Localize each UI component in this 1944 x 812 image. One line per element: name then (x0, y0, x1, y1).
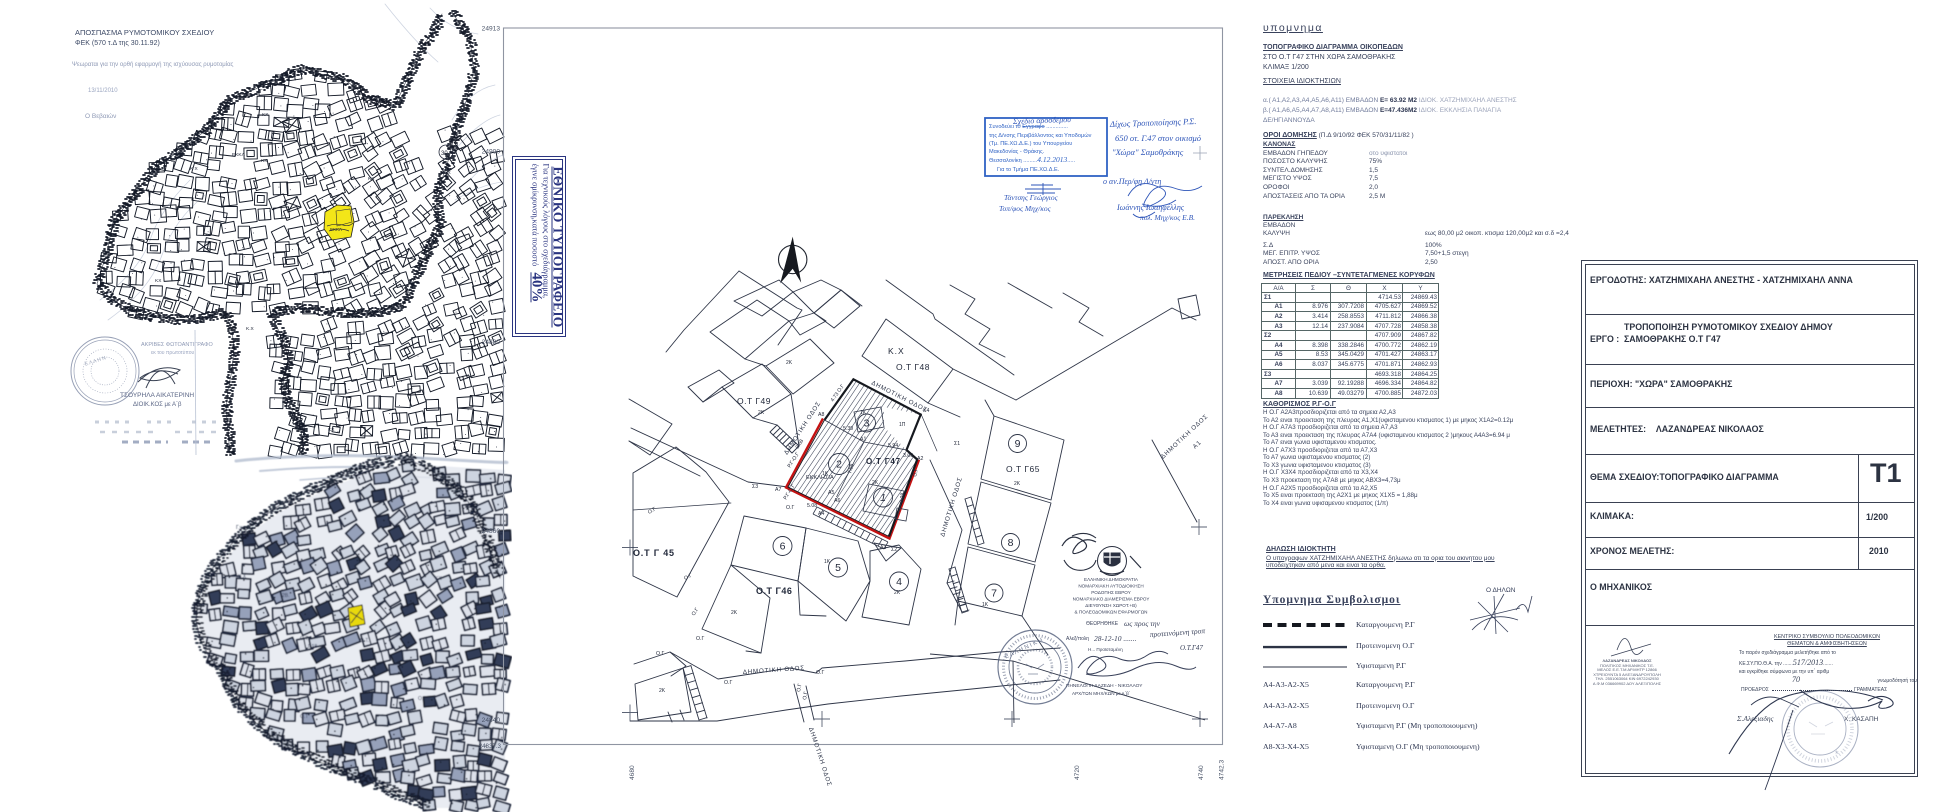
svg-text:8: 8 (1008, 537, 1014, 549)
svg-text:Α6: Α6 (834, 498, 840, 504)
svg-text:προτεινόμενη τροπ: προτεινόμενη τροπ (1150, 626, 1206, 639)
svg-text:1Κ: 1Κ (982, 602, 989, 608)
svg-text:ΕΚΚΛ: ΕΚΚΛ (232, 152, 246, 158)
svg-text:5.94: 5.94 (888, 443, 898, 449)
svg-text:6: 6 (780, 541, 786, 553)
svg-text:Ο.Γ: Ο.Γ (802, 691, 809, 700)
svg-text:Κ.Χ: Κ.Χ (238, 574, 247, 580)
svg-text:Ο.Γ: Ο.Γ (786, 505, 794, 511)
svg-text:Ο.Τ Γ 45: Ο.Τ Γ 45 (633, 548, 675, 558)
svg-text:24913: 24913 (482, 26, 501, 33)
svg-text:9: 9 (1015, 438, 1021, 450)
svg-text:Γ.18: Γ.18 (308, 644, 317, 650)
svg-text:ΚΧ: ΚΧ (261, 158, 268, 164)
svg-text:Α1: Α1 (1192, 439, 1203, 450)
svg-text:4720: 4720 (1074, 765, 1081, 780)
svg-text:ΔΗΜΟΤΙΚΗ ΟΔΟΣ: ΔΗΜΟΤΙΚΗ ΟΔΟΣ (743, 665, 805, 676)
svg-text:5.39: 5.39 (843, 426, 853, 432)
svg-text:εκ του πρωτοτύπου: εκ του πρωτοτύπου (151, 349, 195, 356)
svg-text:2Κ: 2Κ (894, 590, 901, 596)
svg-text:πολ. Μηχ/κος Ε.Β.: πολ. Μηχ/κος Ε.Β. (1140, 213, 1195, 222)
svg-text:650 οτ. Γ.47 στον οικισμό: 650 οτ. Γ.47 στον οικισμό (1115, 133, 1201, 143)
svg-text:2Κ: 2Κ (872, 480, 879, 486)
svg-text:24900: 24900 (482, 149, 501, 156)
svg-text:Ο.Γ: Ο.Γ (683, 573, 693, 582)
svg-text:"Χώρα" Σαμοθράκης: "Χώρα" Σαμοθράκης (1112, 147, 1184, 157)
svg-text:1Κ: 1Κ (860, 410, 867, 416)
svg-text:ΚΧ: ΚΧ (368, 176, 375, 182)
svg-text:Η... Προϊσταμένη: Η... Προϊσταμένη (1088, 646, 1123, 652)
svg-text:*: * (1835, 749, 1839, 759)
svg-text:Ο.Γ: Ο.Γ (647, 506, 657, 515)
svg-text:ΔΗΜΟΤΙΚΗ ΟΔΟΣ: ΔΗΜΟΤΙΚΗ ΟΔΟΣ (807, 726, 833, 787)
svg-text:Ο.Τ Γ65: Ο.Τ Γ65 (1006, 464, 1040, 474)
svg-text:Ο.Γ: Ο.Γ (912, 468, 920, 478)
svg-text:Σ2: Σ2 (891, 547, 897, 553)
svg-text:Ο.Γ: Ο.Γ (696, 636, 704, 642)
svg-text:2Κ: 2Κ (758, 410, 765, 416)
svg-text:Ο.Τ Γ49: Ο.Τ Γ49 (737, 396, 771, 406)
svg-text:Ο.Τ Γ46: Ο.Τ Γ46 (756, 586, 792, 596)
svg-text:Ο.Γ: Ο.Γ (796, 683, 803, 692)
svg-text:ΡΟΔΟΠΗΣ ΕΒΡΟΥ: ΡΟΔΟΠΗΣ ΕΒΡΟΥ (1091, 590, 1131, 595)
svg-text:ΚΧ: ΚΧ (155, 278, 162, 284)
svg-text:Ιωάννης Ιωαηφέλλης: Ιωάννης Ιωαηφέλλης (1116, 203, 1185, 212)
svg-text:Τοπ/φος Μηχ/κος: Τοπ/φος Μηχ/κος (999, 204, 1052, 213)
svg-text:Α4: Α4 (818, 511, 824, 517)
svg-text:Α7: Α7 (775, 487, 781, 493)
svg-text:ΠΗΝΕΛΟΠΗ ΛΑΖΕΔΗ - ΝΙΚΟΛΑΟΥ: ΠΗΝΕΛΟΠΗ ΛΑΖΕΔΗ - ΝΙΚΟΛΑΟΥ (1066, 683, 1143, 689)
svg-text:1Κ: 1Κ (824, 559, 831, 565)
svg-text:Ο.Τ Γ47: Ο.Τ Γ47 (866, 457, 901, 466)
svg-text:2Κ: 2Κ (786, 360, 793, 366)
svg-text:28-12-10 .......: 28-12-10 ....... (1094, 634, 1137, 643)
svg-text:ΝΟΜΑΡΧΙΑΚΗ ΑΥΤΟΔΙΟΙΚΗΣΗ: ΝΟΜΑΡΧΙΑΚΗ ΑΥΤΟΔΙΟΙΚΗΣΗ (1078, 584, 1143, 589)
svg-text:3: 3 (864, 418, 870, 430)
svg-text:ΑΠΟΣΠΑΣΜΑ ΡΥΜΟΤΟΜΙΚΟΥ ΣΧΕΔΙΟΥ: ΑΠΟΣΠΑΣΜΑ ΡΥΜΟΤΟΜΙΚΟΥ ΣΧΕΔΙΟΥ (75, 28, 214, 37)
svg-text:ΔΙΕΥΘΥΝΣΗ ΧΩΡΟΤ.+Β): ΔΙΕΥΘΥΝΣΗ ΧΩΡΟΤ.+Β) (1085, 603, 1137, 608)
svg-text:24837.3: 24837.3 (479, 743, 502, 750)
svg-text:Ο.Τ.: Ο.Τ. (418, 696, 427, 702)
svg-text:Κ Χ: Κ Χ (190, 166, 199, 172)
svg-text:24880: 24880 (482, 339, 501, 346)
svg-text:Ο Βεβαιών: Ο Βεβαιών (85, 112, 116, 120)
svg-text:& ΠΟΛΕΟΔΟΜΙΚΩΝ ΕΦΑΡΜΟΓΩΝ: & ΠΟΛΕΟΔΟΜΙΚΩΝ ΕΦΑΡΜΟΓΩΝ (1075, 610, 1148, 615)
svg-text:Ο.Τ.Γ47: Ο.Τ.Γ47 (1180, 644, 1203, 652)
svg-text:ΚΧ: ΚΧ (262, 112, 269, 118)
svg-text:5.08: 5.08 (807, 503, 817, 509)
svg-text:4: 4 (896, 576, 902, 588)
svg-text:4680: 4680 (629, 765, 636, 780)
svg-text:Για το Τμήμα ΠΕ.ΧΩ.Δ.Ε.: Για το Τμήμα ΠΕ.ΧΩ.Δ.Ε. (997, 166, 1060, 173)
svg-text:2Κ: 2Κ (1014, 481, 1021, 487)
svg-text:Ο.Γ: Ο.Γ (691, 607, 701, 617)
svg-text:Ο.Τ Γ48: Ο.Τ Γ48 (896, 362, 930, 372)
svg-text:ΑΡΧ/ΤΩΝ ΜΗΧ/ΚΩΝ με Α΄β΄: ΑΡΧ/ΤΩΝ ΜΗΧ/ΚΩΝ με Α΄β΄ (1072, 691, 1131, 696)
svg-text:2: 2 (836, 459, 842, 471)
svg-text:Τάντσης Γεώργιος: Τάντσης Γεώργιος (1004, 193, 1059, 202)
svg-text:Ο.Γ: Ο.Γ (724, 680, 732, 686)
svg-text:Ο ΔΗΛΩΝ: Ο ΔΗΛΩΝ (1486, 587, 1516, 594)
svg-text:ΝΟΜΑΡΧΙΑΚΟ ΔΙΑΜΕΡΙΣΜΑ ΕΒΡΟΥ: ΝΟΜΑΡΧΙΑΚΟ ΔΙΑΜΕΡΙΣΜΑ ΕΒΡΟΥ (1073, 597, 1150, 602)
svg-text:ΔΗΜΟΤΙΚΗ ΟΔΟΣ: ΔΗΜΟΤΙΚΗ ΟΔΟΣ (939, 476, 964, 537)
svg-text:ΤΣΟΥΡΗΛΑ ΑΙΚΑΤΕΡΙΝΗ: ΤΣΟΥΡΗΛΑ ΑΙΚΑΤΕΡΙΝΗ (120, 392, 194, 399)
svg-text:Α1: Α1 (860, 437, 866, 443)
svg-text:ως προς την: ως προς την (1124, 619, 1161, 628)
svg-text:ΕΚΚΛ: ΕΚΚΛ (330, 227, 342, 232)
svg-text:Κ.Χ: Κ.Χ (246, 326, 255, 332)
svg-text:Α2: Α2 (917, 456, 923, 462)
svg-text:ΚΧ: ΚΧ (435, 576, 442, 582)
svg-text:Α8: Α8 (818, 412, 824, 418)
svg-text:24860: 24860 (482, 528, 501, 535)
svg-text:ΘΕΩΡΗΘΗΚΕ: ΘΕΩΡΗΘΗΚΕ (1086, 621, 1119, 627)
svg-text:1Κ: 1Κ (822, 471, 829, 477)
svg-text:Ο.Γ: Ο.Γ (656, 651, 664, 657)
svg-text:(Τμ. ΠΕ.ΧΩ.Δ.Ε.) του Υπουργ: (Τμ. ΠΕ.ΧΩ.Δ.Ε.) του Υπουργείου (989, 141, 1072, 147)
svg-text:Ψεωραται για την ορθή εφαρμογή: Ψεωραται για την ορθή εφαρμογή της ισχύο… (72, 61, 234, 68)
svg-text:Χ4: Χ4 (923, 408, 929, 414)
svg-text:1Π: 1Π (899, 422, 906, 428)
svg-text:3.00: 3.00 (903, 453, 913, 459)
svg-text:ΑΚΡΙΒΕΣ ΦΩΤΟΑΝΤΙΓΡΑΦΟ: ΑΚΡΙΒΕΣ ΦΩΤΟΑΝΤΙΓΡΑΦΟ (141, 342, 213, 348)
svg-text:2Κ: 2Κ (731, 610, 738, 616)
svg-text:4742.3: 4742.3 (1219, 759, 1226, 780)
svg-text:4740: 4740 (1198, 765, 1205, 780)
svg-text:της Δ/νσης Περιβάλλοντος και Υ: της Δ/νσης Περιβάλλοντος και Υποδομών (989, 132, 1092, 139)
svg-text:Κ.Χ: Κ.Χ (888, 346, 905, 356)
svg-text:ΚΧ: ΚΧ (328, 427, 335, 433)
svg-text:7: 7 (991, 588, 997, 600)
svg-text:30: 30 (441, 151, 448, 157)
svg-text:ΕΛΛΗΝΙΚΗ ΔΗΜΟΚΡΑΤΙΑ: ΕΛΛΗΝΙΚΗ ΔΗΜΟΚΡΑΤΙΑ (1084, 577, 1139, 582)
svg-text:ΔΙΟΙΚ.ΚΟΣ με Α΄β: ΔΙΟΙΚ.ΚΟΣ με Α΄β (133, 402, 182, 408)
svg-text:Σ3: Σ3 (752, 484, 758, 490)
svg-text:Κ Χ: Κ Χ (443, 170, 452, 176)
svg-text:ΔΗΜΟΤΙΚΗ ΟΔΟΣ: ΔΗΜΟΤΙΚΗ ΟΔΟΣ (1160, 413, 1210, 460)
svg-text:ΦΕΚ (570 τ.Δ της 30.11.92): ΦΕΚ (570 τ.Δ της 30.11.92) (75, 40, 160, 47)
svg-text:1: 1 (880, 492, 886, 504)
svg-text:Α3: Α3 (880, 545, 886, 551)
svg-text:Ο.Γ: Ο.Γ (816, 670, 824, 676)
svg-text:8.98: 8.98 (899, 492, 906, 503)
svg-text:Ο.Τ: Ο.Τ (300, 714, 308, 720)
svg-text:Θεσσαλονίκη .........4.12.2013: Θεσσαλονίκη .........4.12.2013..... (989, 155, 1076, 164)
svg-text:2Β.: 2Β. (282, 593, 290, 599)
svg-text:Αλεξ/πολη: Αλεξ/πολη (1066, 636, 1089, 642)
svg-text:Μακεδονίας - Θράκης.: Μακεδονίας - Θράκης. (989, 148, 1045, 155)
svg-text:Δίχως Τροποποίησης Ρ.Σ.: Δίχως Τροποποίησης Ρ.Σ. (1109, 116, 1197, 129)
svg-text:Ο.Τ.: Ο.Τ. (300, 636, 309, 642)
svg-text:Α5: Α5 (828, 490, 834, 496)
svg-text:ΕΚΚΛΗΣΙΑ: ΕΚΚΛΗΣΙΑ (806, 475, 834, 481)
svg-text:Ο.Τ.: Ο.Τ. (360, 638, 369, 644)
svg-text:5: 5 (835, 562, 841, 574)
svg-text:2Κ: 2Κ (659, 688, 666, 694)
svg-text:Σ1: Σ1 (954, 441, 960, 447)
svg-text:24840: 24840 (482, 717, 501, 724)
svg-text:13/11/2010: 13/11/2010 (88, 88, 118, 94)
